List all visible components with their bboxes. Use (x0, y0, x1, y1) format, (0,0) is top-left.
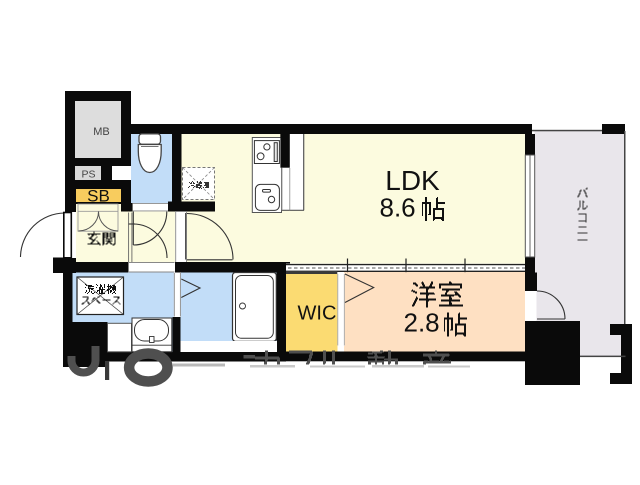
svg-text:PS: PS (81, 169, 95, 181)
svg-text:2.8: 2.8 (404, 308, 440, 338)
svg-text:LDK: LDK (385, 165, 440, 196)
svg-text:SB: SB (87, 187, 110, 206)
svg-text:8.6: 8.6 (380, 193, 416, 223)
svg-text:WIC: WIC (298, 303, 337, 325)
svg-text:MB: MB (93, 126, 110, 138)
